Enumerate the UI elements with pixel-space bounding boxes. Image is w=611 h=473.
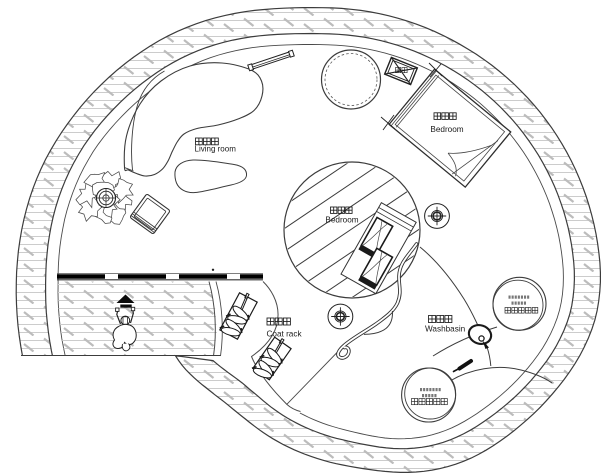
svg-text:Bedroom: Bedroom bbox=[430, 125, 463, 134]
svg-text:Coat rack: Coat rack bbox=[267, 330, 303, 339]
svg-text:Living room: Living room bbox=[195, 145, 237, 154]
svg-text:Bedroom: Bedroom bbox=[325, 216, 358, 225]
svg-text:Washbasin: Washbasin bbox=[425, 325, 466, 334]
